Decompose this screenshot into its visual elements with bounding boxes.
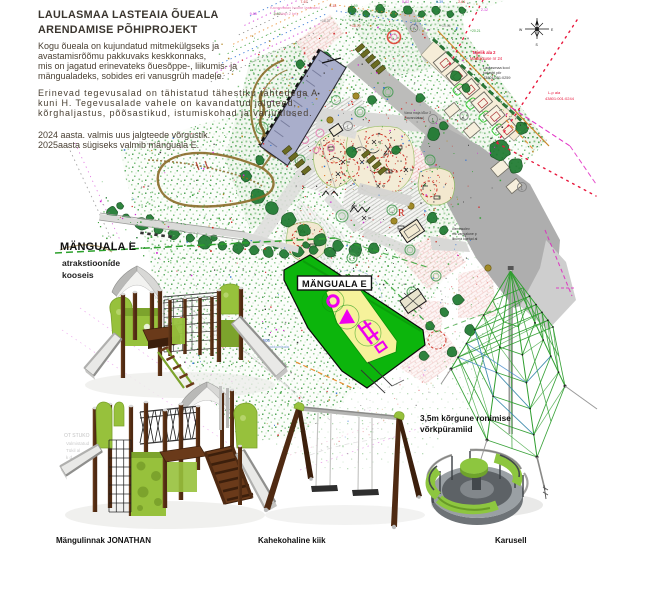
svg-text:katastri piir: katastri piir (483, 71, 502, 75)
svg-text:Tükil al: Tükil al (66, 448, 80, 453)
svg-text:Valmistatud: Valmistatud (66, 441, 90, 446)
svg-text:Täielik ala 2: Täielik ala 2 (472, 50, 496, 55)
svg-text:9-85: 9-85 (250, 12, 257, 16)
svg-text:+18.82: +18.82 (410, 19, 421, 23)
svg-text:olemasolev: olemasolev (452, 227, 470, 231)
svg-text:R: R (398, 208, 405, 219)
svg-text:+18.70: +18.70 (350, 24, 361, 28)
svg-text:kukkumisala: kukkumisala (268, 345, 290, 349)
svg-text:Maaüksuse nr 24: Maaüksuse nr 24 (470, 56, 503, 61)
svg-text:likuma kaetud al: likuma kaetud al (452, 237, 478, 241)
svg-text:6-39: 6-39 (436, 0, 443, 4)
svg-text:2-67: 2-67 (274, 12, 281, 16)
svg-text:Mängulinnak JONATHAN: Mängulinnak JONATHAN (56, 536, 151, 545)
svg-text:43801:001:0259: 43801:001:0259 (483, 76, 510, 80)
svg-text:7-67: 7-67 (300, 0, 307, 4)
svg-text:+20.21: +20.21 (470, 29, 481, 33)
svg-text:Kavandatav hoone lasteaed: Kavandatav hoone lasteaed (270, 5, 320, 10)
svg-text:5-73: 5-73 (379, 4, 386, 8)
svg-text:Laulasmaa kool: Laulasmaa kool (483, 66, 510, 70)
svg-text:+19.96: +19.96 (440, 24, 451, 28)
svg-text:MÄNGUALA E: MÄNGUALA E (302, 279, 367, 289)
svg-text:k d: k d (66, 455, 73, 460)
svg-text:mk varjualune p: mk varjualune p (452, 232, 477, 236)
svg-text:2-12: 2-12 (481, 8, 488, 12)
svg-text:W: W (519, 28, 523, 32)
svg-text:S: S (536, 43, 539, 47)
svg-text:Kahekohaline kiik: Kahekohaline kiik (258, 536, 326, 545)
svg-text:Karusell: Karusell (495, 536, 527, 545)
svg-text:Vana maja kuur 2: Vana maja kuur 2 (404, 111, 431, 115)
svg-text:1-69: 1-69 (350, 4, 357, 8)
svg-text:(kavandatav): (kavandatav) (404, 116, 424, 120)
svg-text:43801:001:0244: 43801:001:0244 (545, 96, 575, 101)
svg-text:E: E (551, 28, 554, 32)
svg-text:OT STUKO: OT STUKO (64, 433, 90, 439)
svg-text:2-61: 2-61 (458, 0, 465, 4)
svg-text:+18.37: +18.37 (320, 19, 331, 23)
svg-text:9-18: 9-18 (329, 4, 336, 8)
svg-text:kooseis: kooseis (62, 270, 94, 280)
svg-text:MÄNGUALA E: MÄNGUALA E (60, 240, 136, 253)
svg-text:võrkpüramiid: võrkpüramiid (420, 424, 473, 434)
svg-text:5-62: 5-62 (402, 0, 409, 4)
svg-text:23: 23 (327, 58, 332, 63)
svg-text:3,5m kõrgune ronimise: 3,5m kõrgune ronimise (420, 413, 511, 423)
svg-text:L-p ala: L-p ala (548, 90, 561, 95)
svg-text:+23.60: +23.60 (380, 29, 391, 33)
svg-text:atrakstioonide: atrakstioonide (62, 258, 120, 268)
